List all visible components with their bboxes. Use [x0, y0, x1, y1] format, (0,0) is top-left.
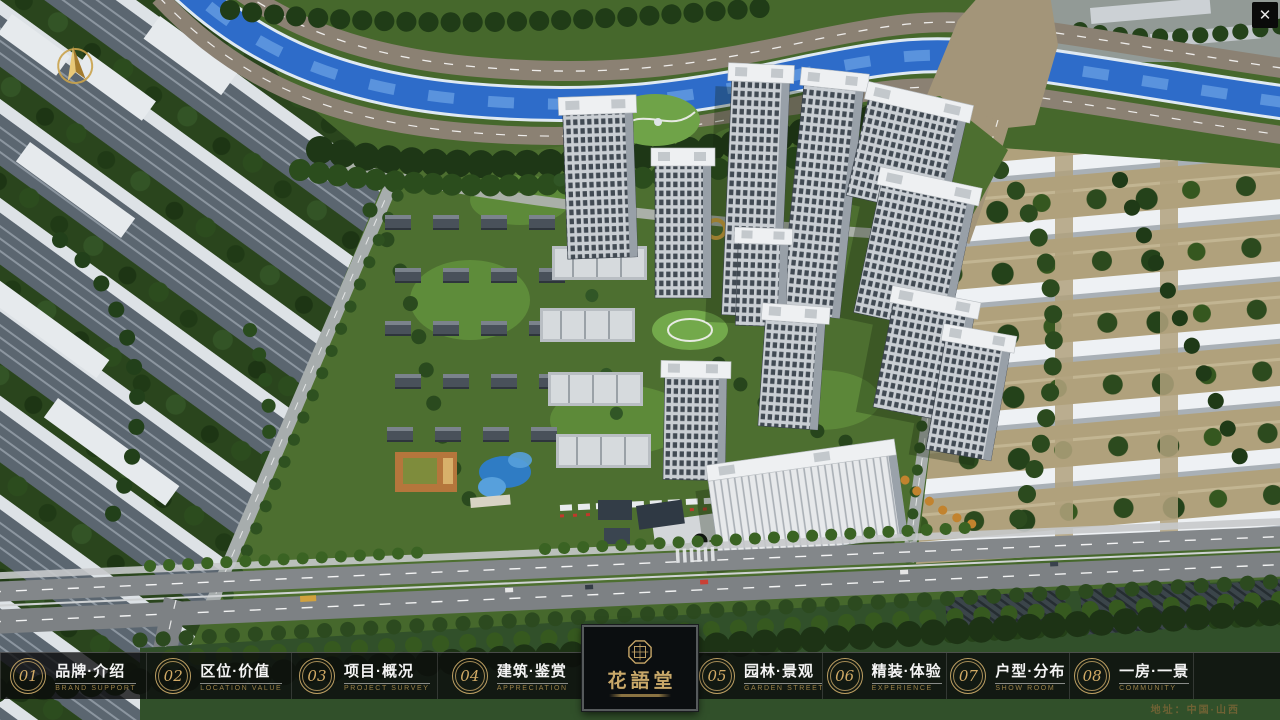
- nav-item-subtitle: PROJECT SURVEY: [344, 685, 430, 692]
- nav-item-subtitle: BRAND SUPPORT: [55, 685, 136, 692]
- nav-item-title: 建筑·鉴赏: [497, 660, 568, 681]
- nav-item-number: 06: [835, 667, 854, 685]
- nav-item-title: 区位·价值: [200, 660, 282, 681]
- nav-item-08[interactable]: 08 一房·一景 COMMUNITY: [1069, 653, 1193, 699]
- close-icon: ✕: [1259, 8, 1272, 23]
- nav-item-06[interactable]: 06 精装·体验 EXPERIENCE: [822, 653, 946, 699]
- nav-item-title: 项目·概况: [344, 660, 430, 681]
- nav-item-subtitle: LOCATION VALUE: [200, 685, 282, 692]
- nav-item-number: 08: [1083, 667, 1102, 685]
- nav-item-07[interactable]: 07 户型·分布 SHOW ROOM: [946, 653, 1070, 699]
- nav-item-subtitle: SHOW ROOM: [995, 685, 1065, 692]
- bottom-nav-bar: 01 品牌·介绍 BRAND SUPPORT 02 区位·价值 LOCATION…: [0, 652, 1280, 699]
- nav-item-divider: [872, 683, 942, 684]
- nav-item-subtitle: GARDEN STREET: [744, 685, 822, 692]
- nav-item-badge: 05: [699, 658, 735, 694]
- nav-item-number: 01: [19, 667, 38, 685]
- project-logo-panel[interactable]: 花語堂: [582, 625, 698, 711]
- project-logo-title: 花語堂: [603, 672, 676, 691]
- compass-icon: [52, 40, 98, 88]
- orange-clubhouse: [395, 452, 457, 492]
- nav-group-left: 01 品牌·介绍 BRAND SUPPORT 02 区位·价值 LOCATION…: [0, 653, 582, 699]
- nav-item-badge: 01: [10, 658, 46, 694]
- nav-item-subtitle: COMMUNITY: [1119, 685, 1189, 692]
- nav-item-badge: 03: [299, 658, 335, 694]
- nav-item-number: 02: [164, 667, 183, 685]
- nav-item-badge: 06: [827, 658, 863, 694]
- nav-item-title: 品牌·介绍: [55, 660, 136, 681]
- nav-item-divider: [344, 683, 430, 684]
- nav-item-02[interactable]: 02 区位·价值 LOCATION VALUE: [146, 653, 292, 699]
- seal-icon: [628, 640, 652, 669]
- logo-ornament: [609, 694, 671, 697]
- nav-item-badge: 02: [155, 658, 191, 694]
- nav-item-number: 05: [707, 667, 726, 685]
- nav-item-divider: [744, 683, 822, 684]
- nav-item-title: 精装·体验: [872, 660, 942, 681]
- nav-item-badge: 08: [1074, 658, 1110, 694]
- close-button[interactable]: ✕: [1252, 2, 1278, 28]
- aerial-site-plan-render: [0, 0, 1280, 720]
- nav-item-03[interactable]: 03 项目·概况 PROJECT SURVEY: [291, 653, 437, 699]
- nav-item-divider: [995, 683, 1065, 684]
- nav-item-title: 户型·分布: [995, 660, 1065, 681]
- nav-item-title: 一房·一景: [1119, 660, 1189, 681]
- nav-item-title: 园林·景观: [744, 660, 822, 681]
- nav-item-divider: [1119, 683, 1189, 684]
- nav-item-divider: [55, 683, 136, 684]
- nav-item-05[interactable]: 05 园林·景观 GARDEN STREET: [698, 653, 822, 699]
- nav-item-subtitle: APPRECIATION: [497, 685, 568, 692]
- nav-item-badge: 07: [950, 658, 986, 694]
- nav-item-number: 03: [307, 667, 326, 685]
- nav-item-subtitle: EXPERIENCE: [872, 685, 942, 692]
- nav-item-number: 04: [460, 667, 479, 685]
- nav-item-divider: [497, 683, 568, 684]
- nav-item-01[interactable]: 01 品牌·介绍 BRAND SUPPORT: [0, 653, 146, 699]
- nav-item-divider: [200, 683, 282, 684]
- nav-item-04[interactable]: 04 建筑·鉴赏 APPRECIATION: [437, 653, 583, 699]
- nav-group-right: 05 园林·景观 GARDEN STREET 06 精装·体验 EXPERIEN…: [698, 653, 1280, 699]
- nav-spacer: [1193, 653, 1280, 699]
- project-address: 地址：中国·山西: [1151, 701, 1240, 716]
- nav-item-badge: 04: [452, 658, 488, 694]
- nav-item-number: 07: [959, 667, 978, 685]
